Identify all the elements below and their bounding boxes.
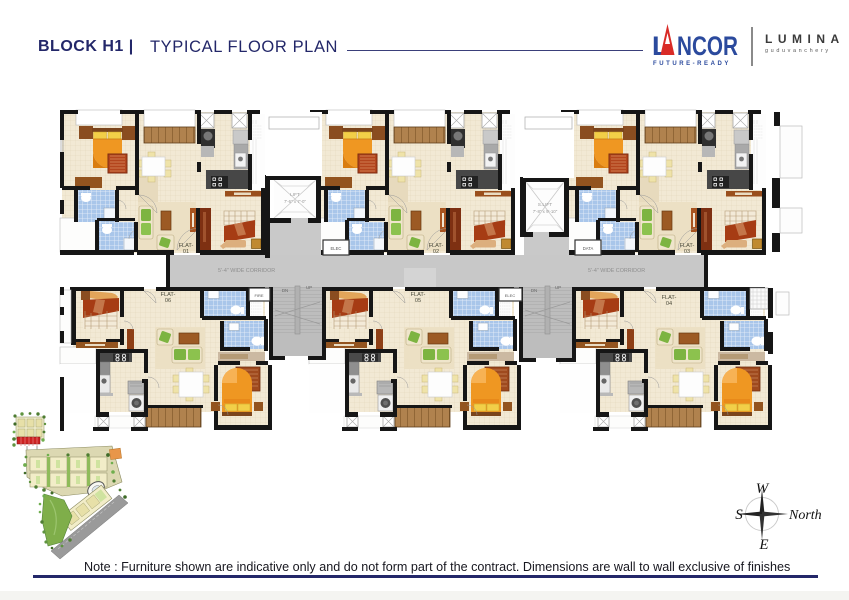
svg-text:05: 05 xyxy=(415,298,421,304)
svg-text:DN: DN xyxy=(282,288,288,293)
svg-text:UP: UP xyxy=(306,285,312,290)
svg-text:5'-4" WIDE CORRIDOR: 5'-4" WIDE CORRIDOR xyxy=(588,268,645,274)
svg-text:S: S xyxy=(735,507,743,523)
svg-text:01: 01 xyxy=(183,249,189,255)
svg-text:FIRE: FIRE xyxy=(254,293,263,298)
svg-text:S.LIFT: S.LIFT xyxy=(538,202,552,208)
svg-text:LIFT: LIFT xyxy=(290,192,300,198)
svg-text:ELEC: ELEC xyxy=(505,293,516,298)
svg-text:W: W xyxy=(756,481,770,497)
svg-text:5'-4" WIDE CORRIDOR: 5'-4" WIDE CORRIDOR xyxy=(218,268,275,274)
svg-text:02: 02 xyxy=(433,249,439,255)
svg-text:North: North xyxy=(788,508,822,523)
svg-text:UP: UP xyxy=(555,285,561,290)
svg-text:7'-6" x 7'-0": 7'-6" x 7'-0" xyxy=(284,199,307,204)
svg-text:ELEC: ELEC xyxy=(331,246,342,251)
svg-text:E: E xyxy=(758,537,768,553)
svg-text:03: 03 xyxy=(684,249,690,255)
svg-text:06: 06 xyxy=(165,298,171,304)
svg-text:7'-8" x 9'-10": 7'-8" x 9'-10" xyxy=(533,209,558,214)
svg-text:DN: DN xyxy=(531,288,537,293)
svg-text:04: 04 xyxy=(666,301,672,307)
svg-text:DATA: DATA xyxy=(583,246,594,251)
